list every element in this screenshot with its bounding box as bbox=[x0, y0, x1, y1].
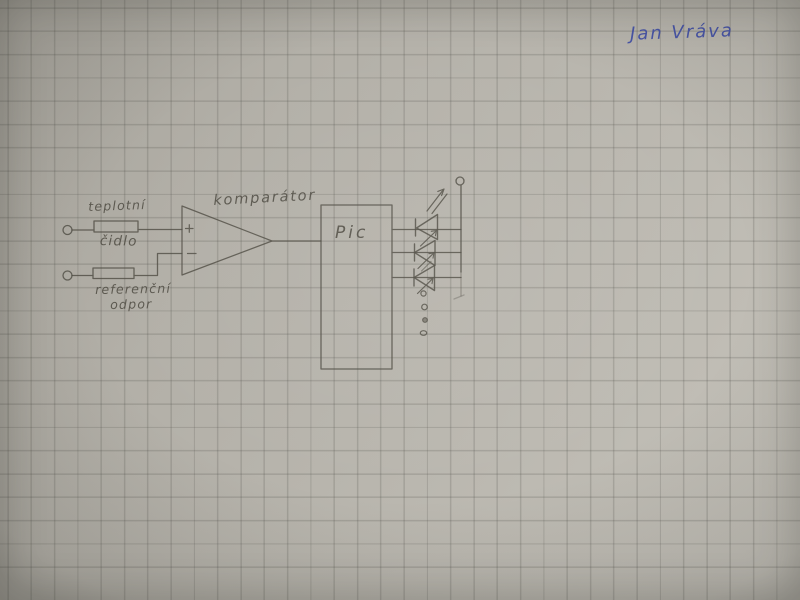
label-cidlo: čidlo bbox=[100, 233, 138, 250]
more-outputs-ellipsis-dots bbox=[420, 291, 427, 335]
label-odpor: odpor bbox=[110, 296, 153, 312]
comparator-opamp-symbol bbox=[182, 206, 321, 275]
plus-input-mark bbox=[186, 225, 194, 232]
supply-rail bbox=[454, 177, 464, 299]
photo-of-squared-paper: teplotní čidlo komparátor referenční odp… bbox=[0, 0, 800, 600]
led-symbol-3 bbox=[414, 266, 435, 294]
label-teplotni: teplotní bbox=[88, 197, 146, 214]
led-emission-arrow bbox=[427, 189, 447, 214]
label-referencni: referenční bbox=[95, 281, 171, 297]
resistor-symbol-reference bbox=[72, 254, 182, 279]
input-terminal-circles bbox=[63, 226, 72, 281]
resistor-symbol-temperature-sensor bbox=[72, 221, 182, 232]
label-pic: Pic bbox=[335, 223, 368, 243]
signature: Jan Vráva bbox=[630, 20, 735, 45]
